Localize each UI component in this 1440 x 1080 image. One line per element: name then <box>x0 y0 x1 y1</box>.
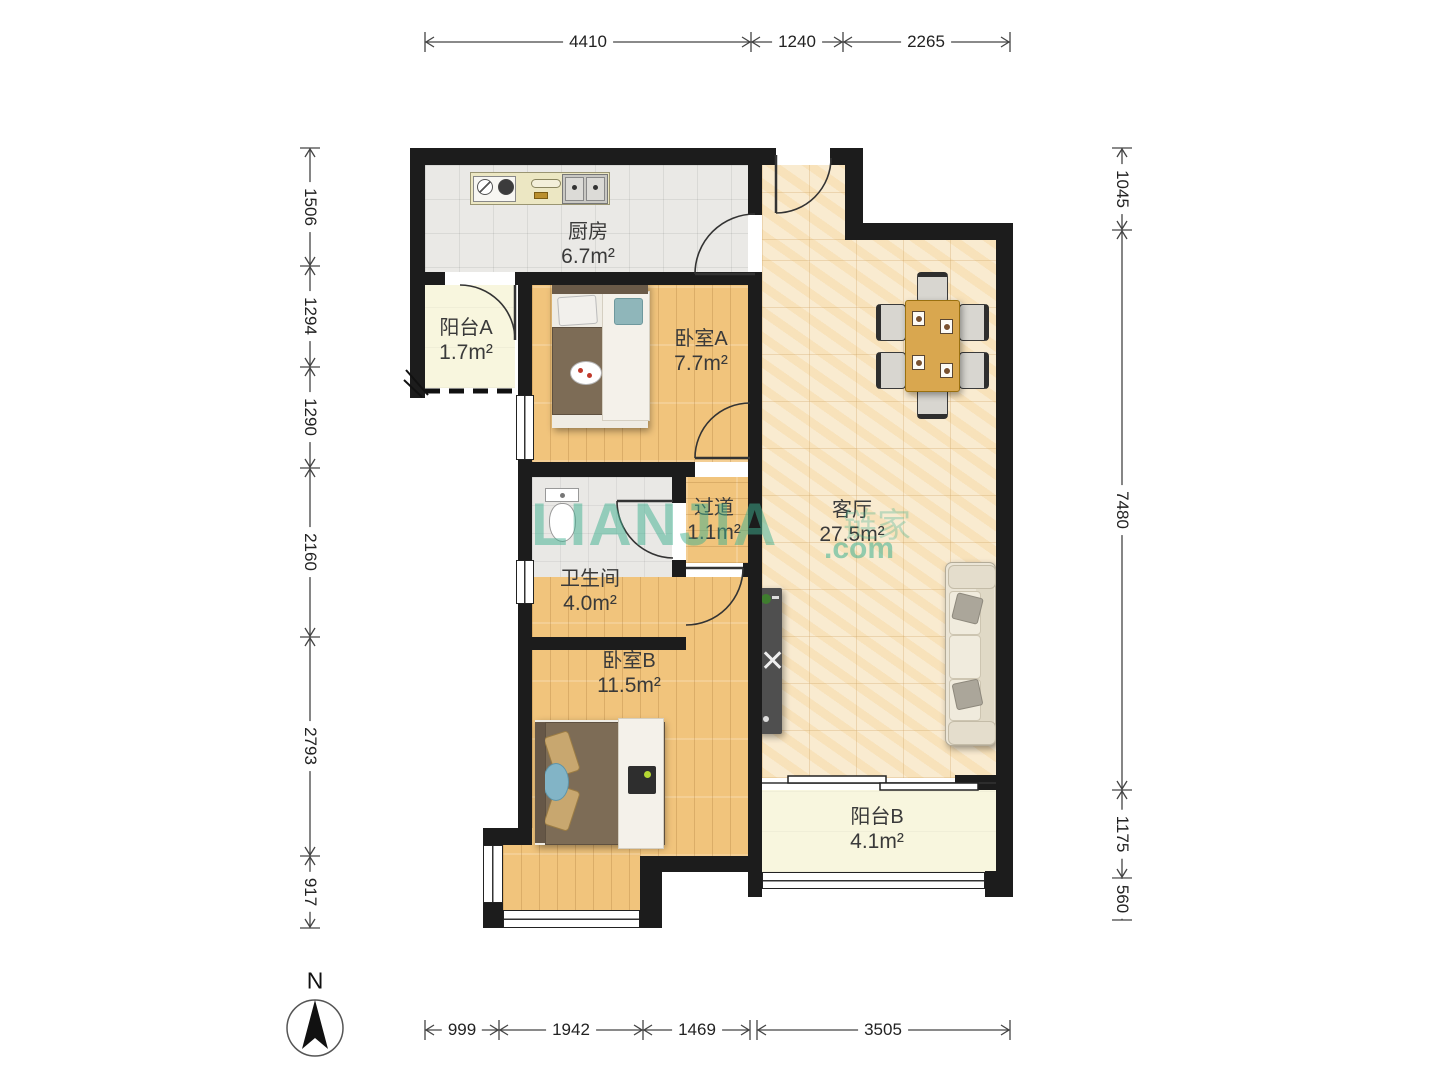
living-area: 27.5m² <box>819 522 884 548</box>
balcony-b-area: 4.1m² <box>850 829 904 855</box>
room-label-balcony-a: 阳台A 1.7m² <box>439 316 493 366</box>
compass-icon <box>287 1000 343 1056</box>
dim-left-1: 1506 <box>300 182 320 232</box>
room-label-hallway: 过道 1.1m² <box>687 496 741 546</box>
dim-left-2: 1294 <box>300 291 320 341</box>
room-label-kitchen: 厨房 6.7m² <box>561 220 615 270</box>
dim-left-5: 2793 <box>300 721 320 771</box>
kitchen-area: 6.7m² <box>561 244 615 270</box>
bedroom-a-door-arc <box>695 403 750 458</box>
bedroom-a-name: 卧室A <box>674 327 727 351</box>
dim-right-2: 7480 <box>1112 485 1132 535</box>
dim-bottom-3: 1469 <box>672 1020 722 1040</box>
dim-right-1: 1045 <box>1112 164 1132 214</box>
room-label-living: 客厅 27.5m² <box>819 498 884 548</box>
dim-bottom-4: 3505 <box>858 1020 908 1040</box>
balcony-a-name: 阳台A <box>439 316 492 340</box>
room-label-balcony-b: 阳台B 4.1m² <box>850 805 904 855</box>
bedroom-a-area: 7.7m² <box>674 351 728 377</box>
balcony-b-name: 阳台B <box>850 805 903 829</box>
balcony-a-open-edge <box>404 370 518 397</box>
hallway-area: 1.1m² <box>687 520 741 546</box>
bathroom-name: 卫生间 <box>560 567 620 591</box>
entry-door-arc <box>776 155 831 213</box>
balcony-a-area: 1.7m² <box>439 340 493 366</box>
bedroom-b-name: 卧室B <box>602 649 655 673</box>
hallway-name: 过道 <box>694 496 734 520</box>
dim-left-3: 1290 <box>300 392 320 442</box>
bathroom-door-arc <box>617 501 673 558</box>
bedroom-b-area: 11.5m² <box>597 673 661 699</box>
dim-top-2: 1240 <box>772 32 822 52</box>
dim-right-3: 1175 <box>1112 810 1132 859</box>
dim-top-3: 2265 <box>901 32 951 52</box>
bathroom-area: 4.0m² <box>563 591 617 617</box>
room-label-bathroom: 卫生间 4.0m² <box>560 567 620 617</box>
dim-bottom-2: 1942 <box>546 1020 596 1040</box>
compass-north-label: N <box>307 968 324 995</box>
room-label-bedroom-a: 卧室A 7.7m² <box>674 327 728 377</box>
sliding-door <box>762 776 996 790</box>
kitchen-door-arc <box>695 214 755 274</box>
floorplan-page: ✕ <box>0 0 1440 1080</box>
dim-left-4: 2160 <box>300 527 320 577</box>
dim-top-1: 4410 <box>563 32 613 52</box>
dim-left-6: 917 <box>300 872 320 912</box>
living-name: 客厅 <box>832 498 872 522</box>
room-label-bedroom-b: 卧室B 11.5m² <box>597 649 661 699</box>
kitchen-name: 厨房 <box>568 220 608 244</box>
dim-right-4: 560 <box>1112 879 1132 919</box>
bedroom-b-door-arc <box>686 568 743 625</box>
dim-bottom-1: 999 <box>442 1020 482 1040</box>
